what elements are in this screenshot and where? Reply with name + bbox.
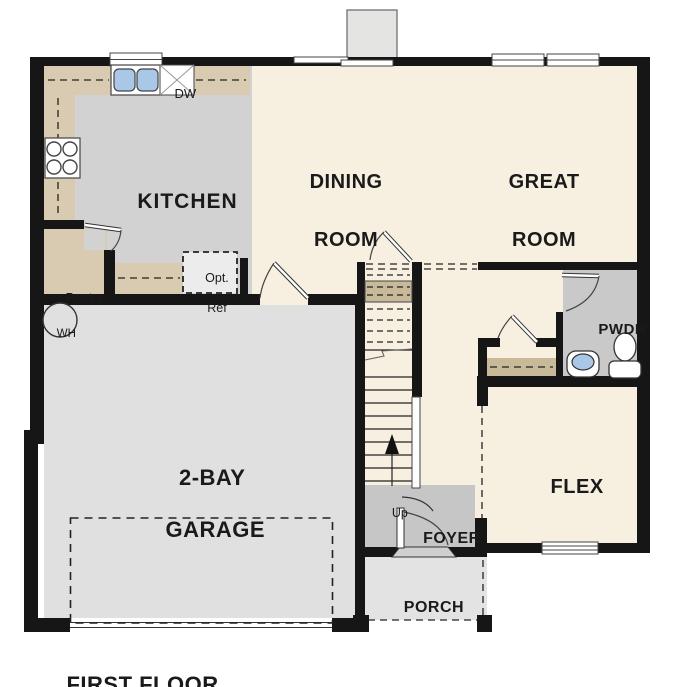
up-arrow-icon (385, 434, 399, 454)
great-room-label: GREAT ROOM (472, 139, 592, 284)
dishwasher-label: DW (160, 70, 194, 119)
dining-room-label: DINING ROOM (274, 139, 394, 284)
porch-label: PORCH (384, 578, 464, 638)
up-label: Up (378, 490, 404, 537)
closet-shelf (487, 358, 556, 376)
opt-ref-label: Opt. Ref (185, 256, 235, 331)
foyer-label: FOYER (402, 509, 482, 569)
page-title: FIRST FLOOR (40, 643, 290, 687)
flex-window (542, 542, 598, 554)
stair-railing (412, 397, 420, 488)
stair-landing-band (365, 281, 412, 302)
flex-label: FLEX (515, 450, 615, 525)
stairs (365, 275, 433, 511)
pwdr-label: PWDR (573, 302, 653, 358)
stair-break-line (365, 349, 412, 360)
closet-door (498, 316, 537, 342)
fireplace-ledge-2 (341, 60, 393, 66)
kitchen-sink-icon (111, 65, 161, 95)
water-heater-label: WH (44, 313, 76, 356)
first-floor-plan: KITCHEN DINING ROOM GREAT ROOM 2-BAY GAR… (0, 0, 687, 687)
garage-label: 2-BAY GARAGE (139, 439, 259, 569)
cooktop-icon (45, 138, 80, 178)
chimney (347, 10, 397, 58)
garage-door-opening (70, 618, 332, 632)
fireplace-ledge-1 (294, 57, 348, 63)
kitchen-label: KITCHEN (110, 163, 230, 242)
